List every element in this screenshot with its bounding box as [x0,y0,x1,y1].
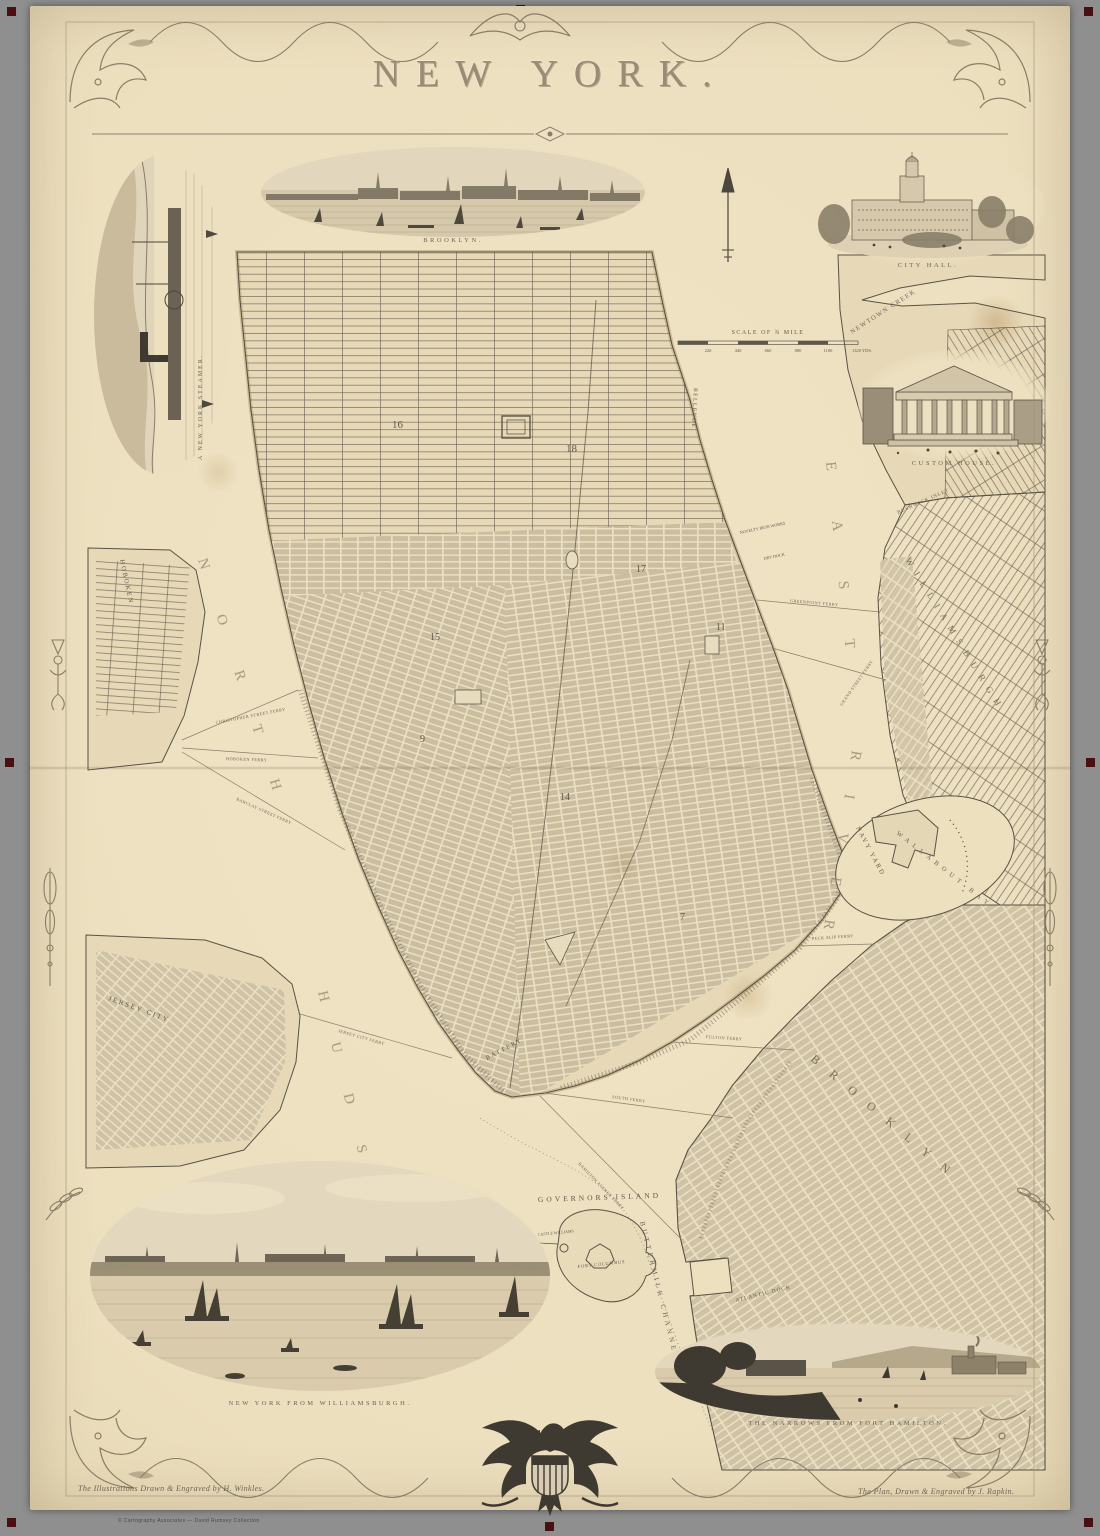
registration-mark [545,1522,554,1531]
harbor-engraving [85,1158,555,1398]
registration-mark [1086,758,1095,767]
city-hall-engraving [812,148,1044,264]
paper-fold-crease [30,766,1070,770]
imprint-plan: The Plan, Drawn & Engraved by J. Rapkin. [858,1487,1014,1496]
vignette-caption: CUSTOM HOUSE. [858,460,1050,467]
map-title: NEW YORK. [0,52,1100,96]
vignette-williamsburgh: NEW YORK FROM WILLIAMSBURGH. [85,1158,555,1398]
vignette-caption: NEW YORK FROM WILLIAMSBURGH. [85,1400,555,1407]
foxing-stain [604,846,644,882]
collection-credit-line: © Cartography Associates — David Rumsey … [118,1518,260,1524]
scanned-antique-map: CHRISTOPHER STREET FERRY HOBOKEN FERRY B… [0,0,1100,1536]
vignette-custom-house: CUSTOM HOUSE. [858,350,1050,460]
vignette-caption: BROOKLYN. [258,237,648,244]
foxing-stain [966,296,1026,348]
registration-mark [7,7,16,16]
brooklyn-engraving [258,146,648,238]
custom-house-engraving [858,350,1050,460]
vignette-steamer: A NEW YORK STEAMER. [90,150,240,480]
vignette-brooklyn: BROOKLYN. [258,146,648,238]
imprint-illustrations: The Illustrations Drawn & Engraved by H.… [78,1484,264,1493]
vignette-narrows: THE NARROWS FROM FORT HAMILTON. [652,1322,1044,1422]
registration-mark [1084,1518,1093,1527]
registration-mark [7,1518,16,1527]
vignette-caption: CITY HALL. [812,262,1044,269]
vignette-city-hall: CITY HALL. [812,148,1044,264]
steamer-engraving [90,150,240,480]
vignette-caption: A NEW YORK STEAMER. [198,290,204,460]
narrows-engraving [652,1322,1044,1422]
registration-mark [1084,7,1093,16]
foxing-stain [196,452,240,492]
foxing-stain [722,972,774,1020]
vignette-caption: THE NARROWS FROM FORT HAMILTON. [652,1420,1044,1427]
registration-mark [5,758,14,767]
